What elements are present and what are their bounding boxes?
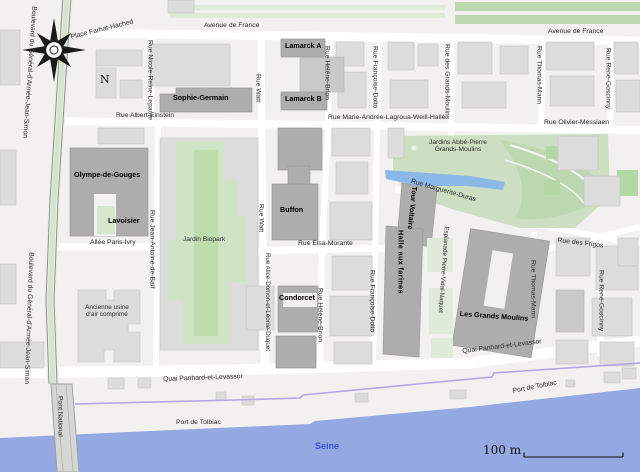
building-footprint <box>418 44 438 66</box>
olympe-garden <box>97 206 115 234</box>
building-footprint <box>0 264 16 304</box>
tram-grass-strip <box>455 2 640 11</box>
building-condorcet <box>276 336 316 368</box>
street-jean-antoine-de-baif <box>156 124 158 370</box>
river-seine <box>0 388 640 472</box>
building-footprint <box>168 0 194 13</box>
building-footprint <box>616 80 640 112</box>
building-footprint <box>556 238 590 276</box>
building-footprint <box>462 82 506 108</box>
condorcet-notch <box>283 293 317 307</box>
building-footprint <box>120 80 142 98</box>
building-footprint <box>330 296 374 336</box>
building-footprint <box>96 50 142 66</box>
lawn <box>544 180 560 195</box>
building-footprint <box>500 46 528 74</box>
building-footprint <box>592 298 632 336</box>
building-footprint <box>246 286 274 330</box>
building-footprint <box>0 150 16 205</box>
building-footprint <box>108 378 124 389</box>
building-footprint <box>558 136 598 170</box>
building-footprint <box>334 342 372 364</box>
tram-grass-strip <box>170 5 445 10</box>
building-footprint <box>556 340 588 364</box>
tram-grass-strip <box>170 13 445 18</box>
building-buffon <box>278 128 322 170</box>
building-footprint <box>96 68 116 98</box>
building-footprint <box>300 57 344 92</box>
building-footprint <box>0 342 44 368</box>
building-footprint <box>458 42 492 74</box>
building-footprint <box>556 290 584 332</box>
esplanade-lawn <box>427 238 453 272</box>
building-footprint <box>550 76 594 106</box>
building-footprint <box>388 128 404 158</box>
building-ancienne-usine <box>78 290 140 362</box>
building-footprint <box>330 202 372 240</box>
building-halle-aux-farines <box>383 226 423 357</box>
building-buffon <box>272 184 318 240</box>
building-footprint <box>614 42 638 74</box>
building-footprint <box>618 238 638 266</box>
building-footprint <box>336 162 368 194</box>
building-footprint <box>390 80 428 108</box>
compass-rose-icon <box>22 18 86 82</box>
building-buffon <box>288 166 310 186</box>
building-lamarck-a <box>281 39 325 57</box>
map-canvas[interactable]: Avenue de France Avenue de France Place … <box>0 0 640 472</box>
building-lamarck-b <box>281 92 327 110</box>
building-footprint <box>584 176 620 206</box>
building-footprint <box>388 42 414 70</box>
building-footprint <box>98 128 144 144</box>
esplanade-lawn <box>431 338 453 358</box>
street-avenue-de-france <box>88 33 640 41</box>
biopark-lawn <box>194 150 218 336</box>
building-sophie-germain <box>160 88 252 112</box>
building-condorcet <box>278 286 318 332</box>
building-footprint <box>332 128 370 156</box>
building-footprint <box>546 42 594 70</box>
esplanade-lawn <box>429 288 453 334</box>
building-les-grands-moulins <box>452 229 549 358</box>
tram-grass-strip <box>455 15 640 24</box>
building-footprint <box>600 342 634 366</box>
map-base <box>0 0 640 472</box>
street-des-grands-moulins <box>451 36 452 136</box>
building-footprint <box>0 30 20 85</box>
building-footprint <box>150 44 230 86</box>
building-footprint <box>332 256 372 290</box>
